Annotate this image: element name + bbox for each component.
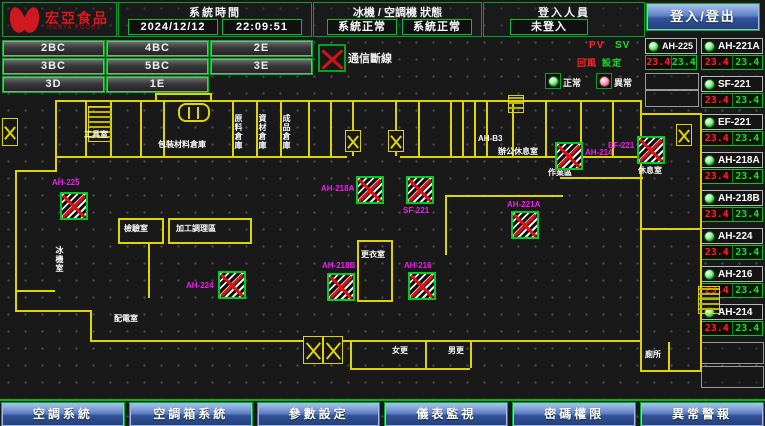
plan-wall	[155, 93, 157, 102]
plan-wall	[357, 240, 359, 302]
marker-label-ah-216: AH-216	[404, 261, 432, 270]
plan-wall	[560, 177, 643, 179]
marker-ah-218a[interactable]	[356, 176, 384, 204]
plan-wall	[486, 100, 488, 156]
plan-wall	[640, 113, 702, 115]
door-icon	[2, 118, 18, 146]
nav-divider	[0, 399, 765, 401]
nav-button-2[interactable]: 空調箱系統	[130, 403, 252, 426]
plan-wall	[450, 100, 452, 156]
nav-button-3[interactable]: 參數設定	[258, 403, 380, 426]
plan-wall	[118, 218, 120, 244]
plan-wall	[470, 340, 472, 368]
stairs-icon	[698, 286, 720, 314]
marker-label-ah-218b: AH-218B	[322, 261, 355, 270]
marker-label-ah-218a: AH-218A	[321, 184, 354, 193]
plan-wall	[168, 218, 170, 244]
plan-wall	[445, 195, 563, 197]
room-label: 檢驗室	[124, 224, 148, 233]
door-icon	[388, 130, 404, 152]
plan-wall	[640, 228, 702, 230]
plan-wall	[668, 342, 670, 370]
plan-wall	[55, 100, 642, 102]
room-label: 女更	[392, 346, 408, 355]
room-label: AH-B3	[478, 134, 502, 143]
marker-label-ah-221a: AH-221A	[507, 200, 540, 209]
door-icon	[323, 336, 343, 364]
plan-wall	[140, 100, 142, 156]
plan-wall	[350, 368, 470, 370]
room-label: 原料倉庫	[234, 114, 243, 150]
room-label: 休息室	[638, 166, 662, 175]
plan-wall	[330, 100, 332, 156]
marker-label-ef-221: EF-221	[608, 141, 634, 150]
door-icon	[676, 124, 692, 146]
marker-ef-221[interactable]	[637, 136, 665, 164]
plan-wall	[640, 370, 702, 372]
stairs-icon	[508, 95, 524, 113]
plan-wall	[418, 100, 420, 156]
plan-wall	[350, 340, 352, 368]
plan-wall	[168, 242, 252, 244]
floor-plan: 工具室包裝材料倉庫原料倉庫資材倉庫成品倉庫AH-B3辦公休息室檢驗室加工調理區更…	[0, 0, 765, 400]
nav-button-1[interactable]: 空調系統	[2, 403, 124, 426]
marker-label-ah-225: AH-225	[52, 178, 80, 187]
plan-wall	[640, 342, 642, 372]
plan-wall	[55, 100, 57, 172]
room-label: 工具室	[84, 130, 108, 139]
marker-sf-221[interactable]	[406, 176, 434, 204]
plan-wall	[700, 113, 702, 372]
marker-ah-224[interactable]	[218, 271, 246, 299]
plan-wall	[357, 300, 393, 302]
plan-wall	[445, 195, 447, 255]
marker-ah-218b[interactable]	[327, 273, 355, 301]
plan-wall	[85, 100, 87, 156]
plan-wall	[15, 290, 55, 292]
room-label: 成品倉庫	[282, 114, 291, 150]
marker-ah-221a[interactable]	[511, 211, 539, 239]
door-icon	[303, 336, 323, 364]
plan-wall	[15, 170, 57, 172]
plan-wall	[425, 340, 427, 368]
plan-wall	[210, 93, 212, 102]
plan-wall	[90, 310, 92, 342]
plan-wall	[55, 156, 347, 158]
marker-ah-225[interactable]	[60, 192, 88, 220]
nav-button-4[interactable]: 儀表監視	[385, 403, 507, 426]
plan-wall	[168, 218, 252, 220]
room-label: 廁所	[645, 350, 661, 359]
room-label: 資材倉庫	[258, 114, 267, 150]
elevator-icon	[178, 103, 210, 122]
room-label: 更衣室	[361, 250, 385, 259]
plan-wall	[148, 242, 150, 298]
plan-wall	[250, 218, 252, 244]
plan-wall	[155, 93, 212, 95]
room-label: 辦公休息室	[498, 147, 538, 156]
plan-wall	[118, 242, 164, 244]
room-label: 配電室	[114, 314, 138, 323]
plan-wall	[391, 240, 393, 302]
marker-ah-214[interactable]	[555, 142, 583, 170]
plan-wall	[545, 100, 547, 156]
plan-wall	[474, 100, 476, 156]
plan-wall	[15, 310, 92, 312]
nav-button-5[interactable]: 密碼權限	[513, 403, 635, 426]
room-label: 加工調理區	[176, 224, 216, 233]
plan-wall	[162, 218, 164, 244]
marker-label-ah-224: AH-224	[186, 281, 214, 290]
plan-wall	[357, 240, 393, 242]
bottom-nav: 空調系統空調箱系統參數設定儀表監視密碼權限異常警報	[0, 403, 765, 426]
door-icon	[345, 130, 361, 152]
room-label: 包裝材料倉庫	[158, 140, 206, 149]
room-label: 男更	[448, 346, 464, 355]
marker-label-sf-221: SF-221	[403, 206, 429, 215]
plan-wall	[462, 100, 464, 156]
room-label: 冰機室	[55, 246, 64, 273]
marker-ah-216[interactable]	[408, 272, 436, 300]
plan-wall	[308, 100, 310, 156]
plan-wall	[118, 218, 164, 220]
nav-button-6[interactable]: 異常警報	[641, 403, 763, 426]
plan-wall	[90, 340, 642, 342]
